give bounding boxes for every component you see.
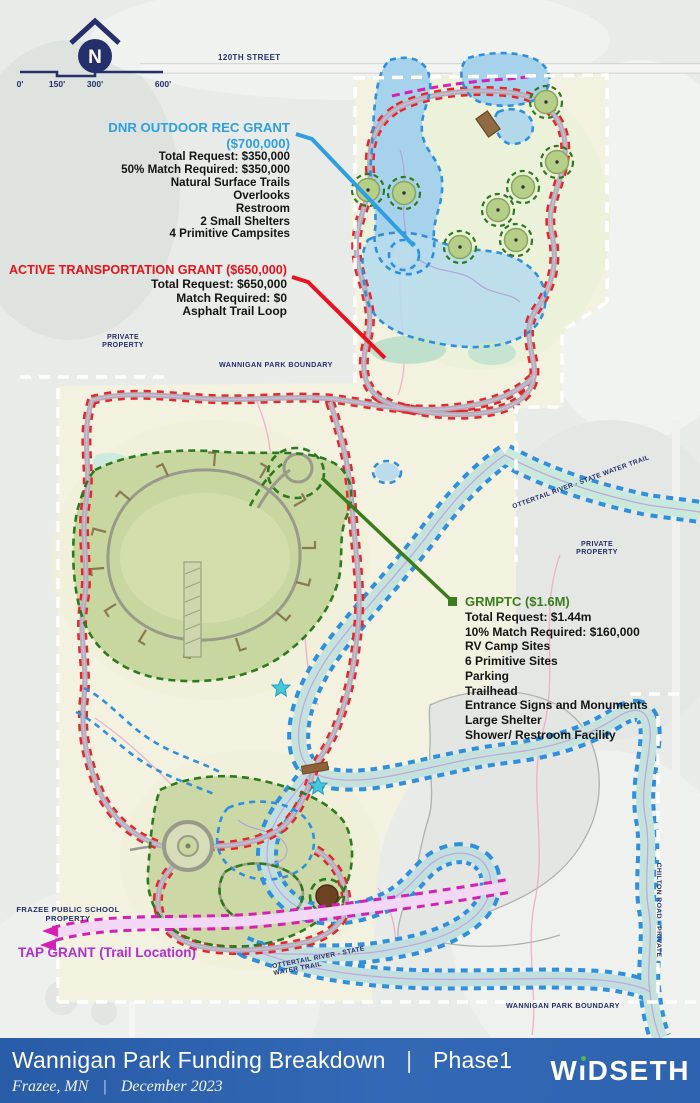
logo-w: W	[550, 1055, 578, 1086]
park-boundary-bottom-label: WANNIGAN PARK BOUNDARY	[506, 1002, 620, 1010]
grmptc-line: Entrance Signs and Monuments	[465, 698, 700, 713]
grmptc-line: Total Request: $1.44m	[465, 610, 700, 625]
tap-grant-label: TAP GRANT (Trail Location)	[18, 945, 196, 960]
widseth-logo: WıDSETH	[550, 1055, 690, 1087]
grmptc-line: Trailhead	[465, 684, 700, 699]
atg-line: Match Required: $0	[0, 292, 287, 306]
entrance-roundabout	[164, 822, 212, 870]
svg-text:300': 300'	[87, 79, 103, 89]
date-text: December 2023	[121, 1078, 223, 1095]
grmptc-line: RV Camp Sites	[465, 639, 700, 654]
svg-text:150': 150'	[49, 79, 65, 89]
dnr-line: Overlooks	[30, 190, 290, 203]
scale-bar: 0' 150' 300' 600'	[16, 62, 176, 95]
dnr-grant-block: DNR OUTDOOR REC GRANT ($700,000) Total R…	[30, 120, 290, 241]
logo-i: ı	[578, 1055, 587, 1087]
atg-line: Asphalt Trail Loop	[0, 305, 287, 319]
subtitle-separator: |	[102, 1078, 106, 1095]
private-property-left-label: PRIVATE PROPERTY	[92, 334, 154, 351]
dnr-grant-title: DNR OUTDOOR REC GRANT	[30, 120, 290, 136]
svg-text:0': 0'	[17, 79, 24, 89]
private-property-right-label: PRIVATE PROPERTY	[566, 541, 628, 558]
title-separator: |	[406, 1047, 412, 1073]
dnr-line: Natural Surface Trails	[30, 177, 290, 190]
funding-breakdown-poster: N 0' 150' 300' 600' 120TH STREET PRIVATE…	[0, 0, 700, 1103]
title-text: Wannigan Park Funding Breakdown	[12, 1047, 386, 1073]
logo-rest: DSETH	[588, 1055, 690, 1086]
poster-title: Wannigan Park Funding Breakdown | Phase1	[12, 1047, 512, 1074]
grmptc-line: Shower/ Restroom Facility	[465, 728, 700, 743]
street-label: 120TH STREET	[218, 53, 281, 62]
dnr-line: Restroom	[30, 203, 290, 216]
svg-text:600': 600'	[155, 79, 171, 89]
site-map: N 0' 150' 300' 600' 120TH STREET PRIVATE…	[0, 0, 700, 1038]
grmptc-line: Parking	[465, 669, 700, 684]
dnr-line: 50% Match Required: $350,000	[30, 164, 290, 177]
grmptc-line: 6 Primitive Sites	[465, 654, 700, 669]
grmptc-line: Large Shelter	[465, 713, 700, 728]
school-property-label: FRAZEE PUBLIC SCHOOL PROPERTY	[15, 906, 121, 924]
grmptc-line: 10% Match Required: $160,000	[465, 625, 700, 640]
phase-text: Phase1	[433, 1047, 512, 1073]
atg-line: Total Request: $650,000	[0, 278, 287, 292]
title-bar: Wannigan Park Funding Breakdown | Phase1…	[0, 1038, 700, 1103]
grmptc-grant-block: GRMPTC ($1.6M) Total Request: $1.44m 10%…	[465, 593, 700, 742]
active-transportation-grant-block: ACTIVE TRANSPORTATION GRANT ($650,000) T…	[0, 263, 287, 319]
dnr-line: Total Request: $350,000	[30, 151, 290, 164]
rv-parking	[184, 562, 201, 657]
dnr-line: 4 Primitive Campsites	[30, 228, 290, 241]
logo-green-dot-icon	[581, 1056, 586, 1061]
park-boundary-top-label: WANNIGAN PARK BOUNDARY	[219, 361, 333, 369]
location-text: Frazee, MN	[12, 1078, 88, 1095]
atg-grant-title: ACTIVE TRANSPORTATION GRANT ($650,000)	[0, 263, 287, 278]
chilton-road-label: CHILTON ROAD - PRIVATE	[654, 858, 662, 962]
dnr-grant-amount: ($700,000)	[30, 136, 290, 152]
grmptc-callout-square	[448, 597, 457, 606]
poster-subtitle: Frazee, MN | December 2023	[12, 1078, 223, 1096]
grmptc-grant-title: GRMPTC ($1.6M)	[465, 593, 700, 610]
